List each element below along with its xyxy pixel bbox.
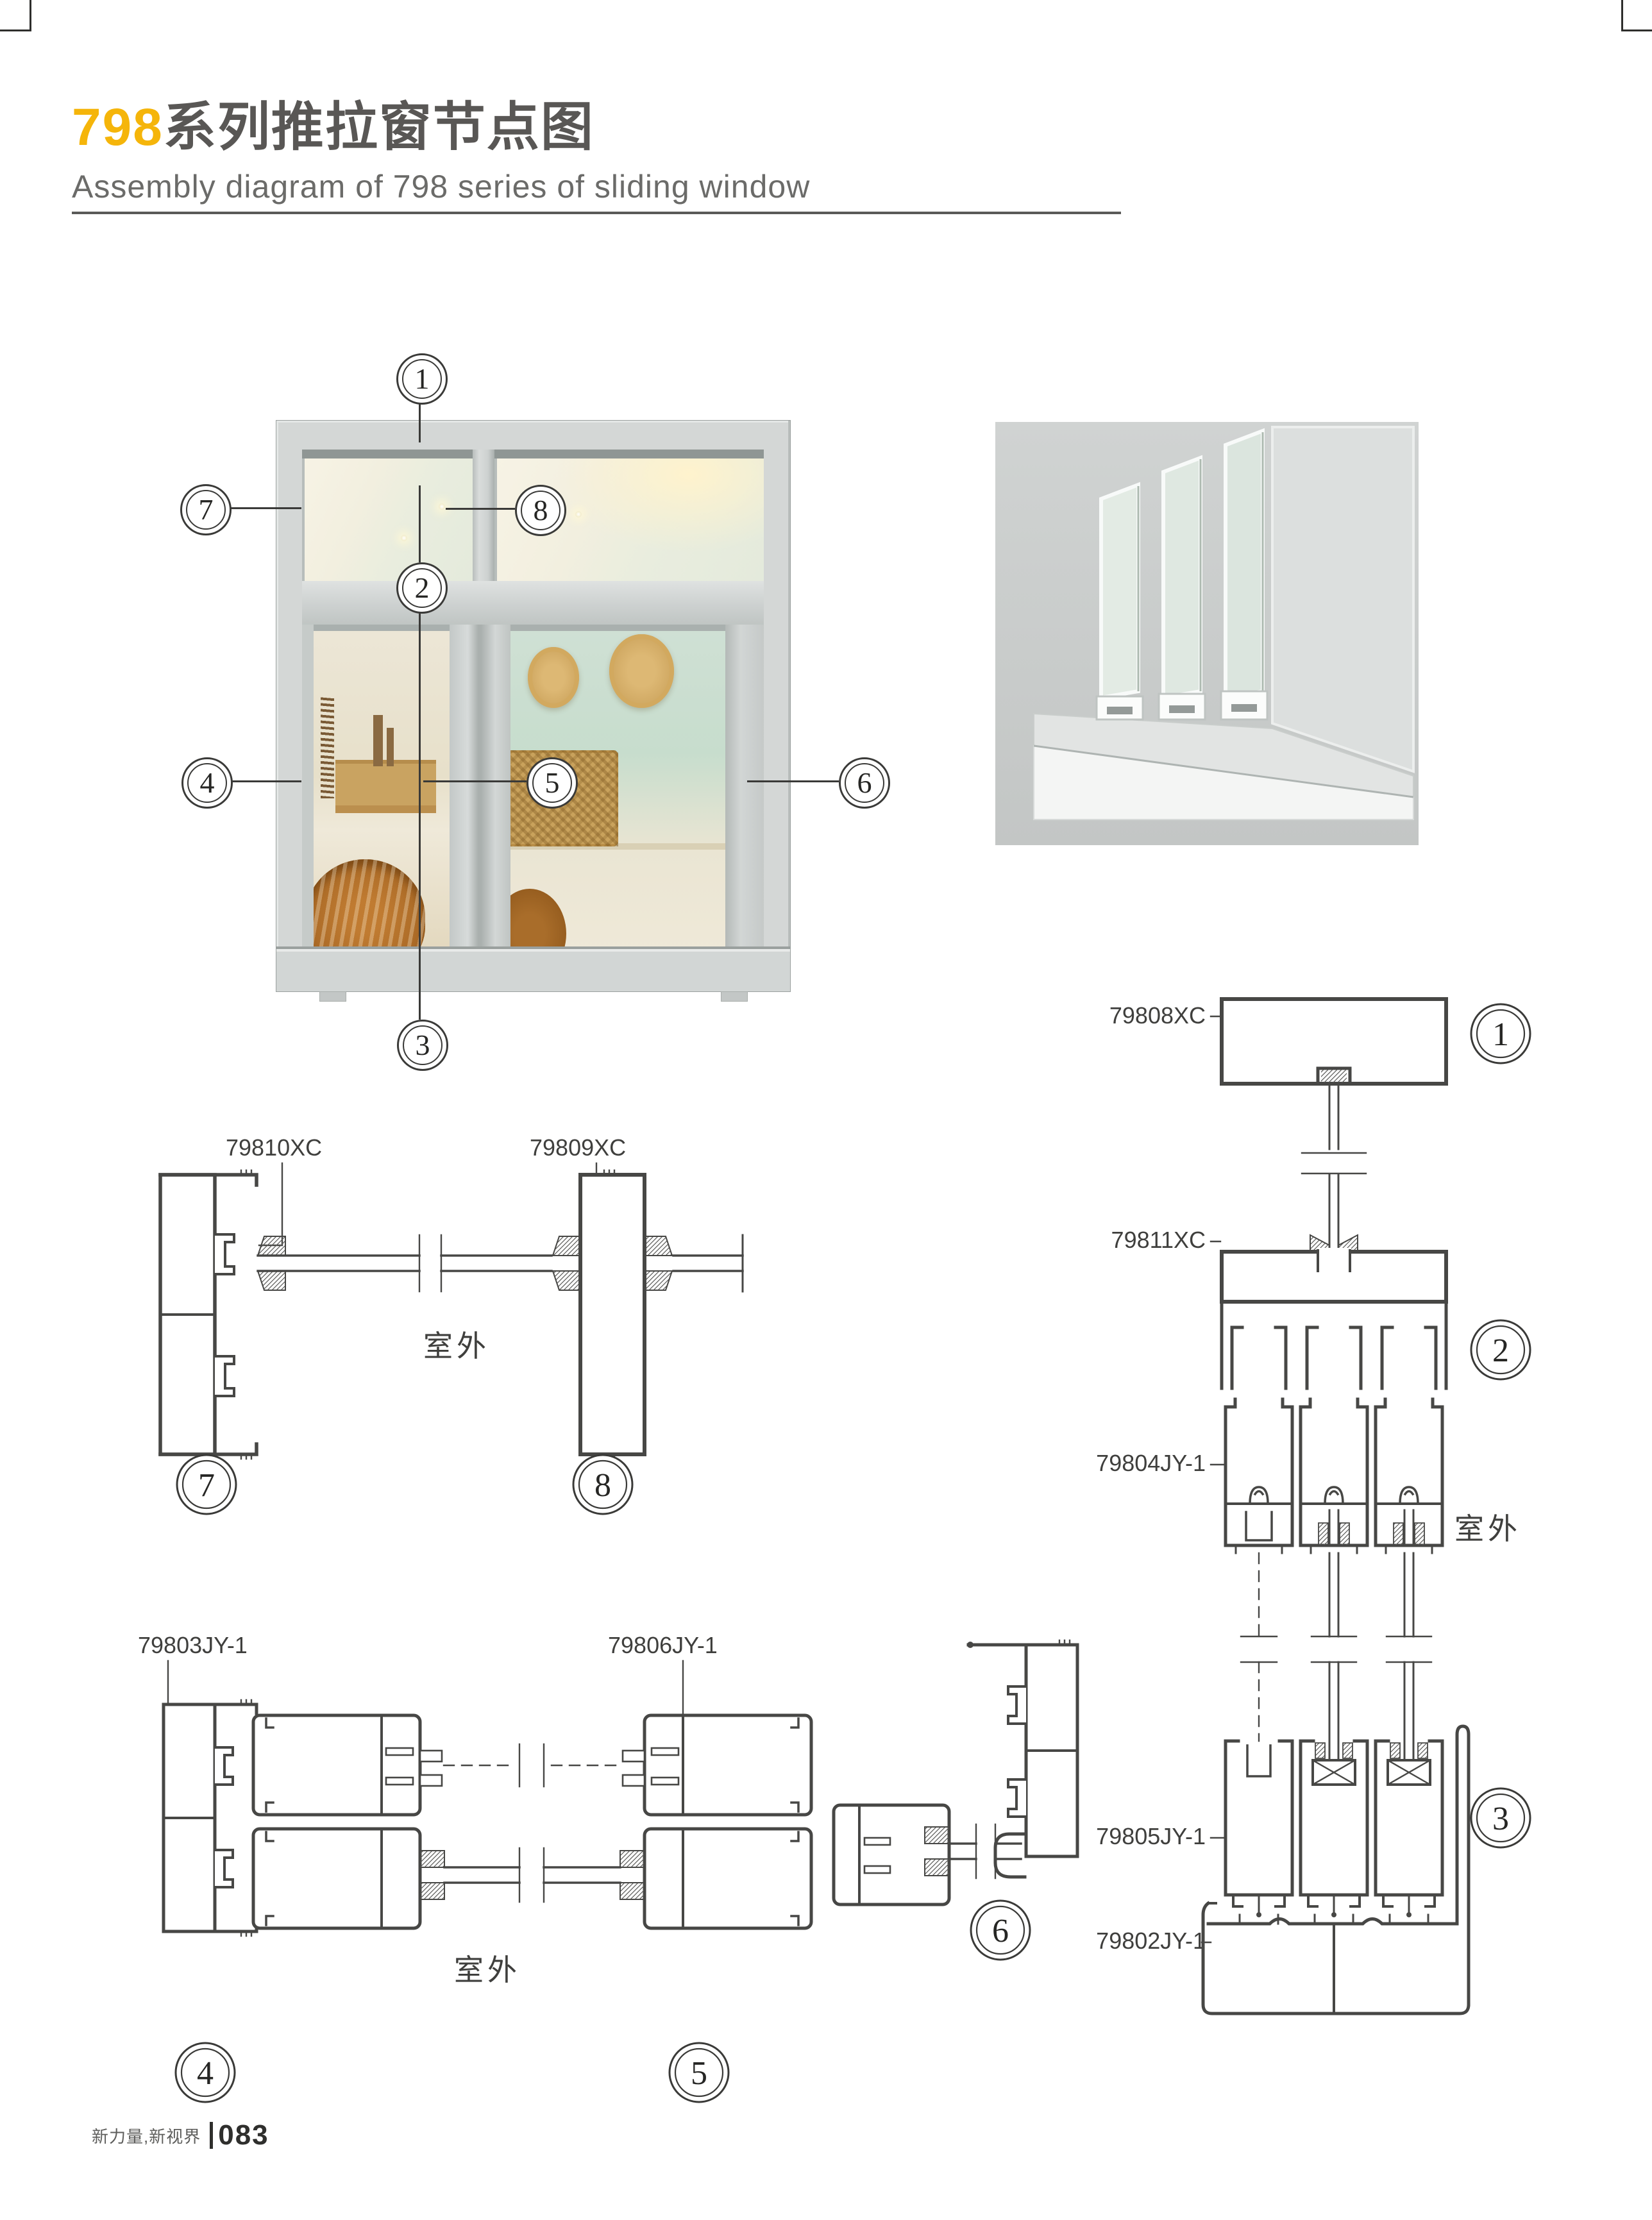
callout-line-2-3 [419,610,421,1020]
decor-vase [387,728,394,766]
profile-79808-head [1222,999,1446,1084]
title-text-zh: 系列推拉窗节点图 [164,98,594,156]
section-4-5-6-drawing: 79803JY-1 79806JY-1 [128,1616,1090,2103]
callout-8: 8 [515,485,566,536]
callout-line-7 [228,507,301,509]
part-label-79804JY-1: 79804JY-1 [1096,1450,1206,1476]
header-rule [72,212,1121,214]
profile-3d-render-art [995,422,1419,845]
profile-79810-jamb [160,1170,257,1459]
part-label-79810XC: 79810XC [226,1134,322,1161]
callout-1: 1 [396,353,448,405]
callout-line-6 [747,780,839,782]
ceiling-light [401,535,407,541]
section-callout-3: 3 [1471,1788,1530,1847]
profile-79811-transom [1222,1248,1446,1388]
link-rail-to-6 [834,1805,1021,1905]
decor-branches [321,695,334,798]
svg-text:4: 4 [197,2055,214,2092]
upper-sash-rails [253,1715,811,1815]
leader-79810XC [259,1163,282,1245]
callout-line-8 [446,508,515,510]
svg-text:7: 7 [198,1467,215,1504]
callout-3: 3 [397,1020,448,1071]
callout-line-1 [419,401,421,442]
sash-bottom-rails [1226,1741,1442,1917]
right-jamb-stile [725,625,764,946]
ceiling-light [439,503,445,510]
svg-text:6: 6 [992,1913,1009,1949]
page-subtitle: Assembly diagram of 798 series of slidin… [72,168,810,205]
outdoor-label-123: 室外 [1454,1512,1521,1545]
section-callout-1: 1 [1471,1004,1530,1063]
callout-4: 4 [181,757,233,809]
transom-bar [302,581,764,625]
page-footer: 新力量,新视界 083 [92,2119,269,2151]
glass-runs-vertical [1241,1553,1431,1741]
crop-mark-top-left [0,0,31,31]
profile-3d-render [995,422,1419,845]
part-label-79806JY-1: 79806JY-1 [608,1632,718,1658]
outdoor-label-456: 室外 [454,1953,521,1987]
part-label-79809XC: 79809XC [530,1134,626,1161]
decor-plate [609,634,674,708]
callout-line-5 [423,780,527,782]
callout-5: 5 [527,757,578,809]
top-mullion [473,450,494,581]
decor-plate [528,647,579,708]
profile-79803-left-jamb [164,1700,257,1936]
svg-text:1: 1 [1492,1016,1509,1053]
render-glass-panes [1101,431,1263,698]
page-title: 798系列推拉窗节点图 [72,101,594,154]
callout-7: 7 [180,484,232,535]
part-label-79811XC: 79811XC [1111,1227,1206,1253]
glass-stem-upper [1302,1084,1366,1252]
svg-text:5: 5 [691,2055,707,2092]
lower-sash-rails [253,1829,811,1928]
part-label-79803JY-1: 79803JY-1 [138,1632,248,1658]
title-series-number: 798 [72,98,164,156]
outdoor-label-78: 室外 [423,1329,490,1363]
part-label-79802JY-1: 79802JY-1 [1096,1928,1206,1954]
fixed-pane-top-left [302,450,473,590]
footer-page-number: 083 [218,2119,269,2151]
footer-brand: 新力量,新视界 [92,2124,201,2148]
section-1-2-3-drawing: 79808XC 79811XC 79804JY-1 79805JY-1 7980… [1026,981,1539,2033]
render-fascia [1272,427,1413,771]
part-label-79805JY-1: 79805JY-1 [1096,1823,1206,1849]
callout-6: 6 [839,757,890,809]
ceiling-light [575,511,582,517]
bottom-track-frame [276,946,790,991]
footer-divider [210,2122,213,2149]
section-callout-6: 6 [971,1901,1030,1960]
profile-79809-mullion [580,1170,645,1459]
callout-line-1-2 [419,485,421,562]
profile-right-jamb-6 [967,1640,1077,1877]
frame-foot [721,991,748,1002]
callout-line-4 [229,780,301,782]
decor-bench [335,760,436,805]
svg-text:3: 3 [1492,1801,1509,1837]
part-label-79808XC: 79808XC [1109,1002,1206,1029]
glass-panes-section [258,1235,743,1291]
svg-text:8: 8 [594,1467,611,1504]
section-callout-8: 8 [573,1455,632,1514]
decor-vase [373,715,383,766]
frame-foot [319,991,346,1002]
render-track-fins [1097,691,1267,719]
crop-mark-top-right [1621,0,1652,31]
section-callout-2: 2 [1471,1320,1530,1379]
section-callout-7: 7 [177,1455,236,1514]
svg-text:2: 2 [1492,1333,1509,1369]
section-7-8-drawing: 79810XC 79809XC 室外 7 8 [147,1109,763,1526]
sash-top-rails [1226,1399,1442,1553]
section-callout-5: 5 [670,2043,729,2102]
meeting-stiles [450,625,510,946]
left-sash-glass [314,625,450,963]
left-jamb-stile [302,625,314,946]
section-callout-4: 4 [176,2043,235,2102]
callout-2: 2 [396,562,448,614]
